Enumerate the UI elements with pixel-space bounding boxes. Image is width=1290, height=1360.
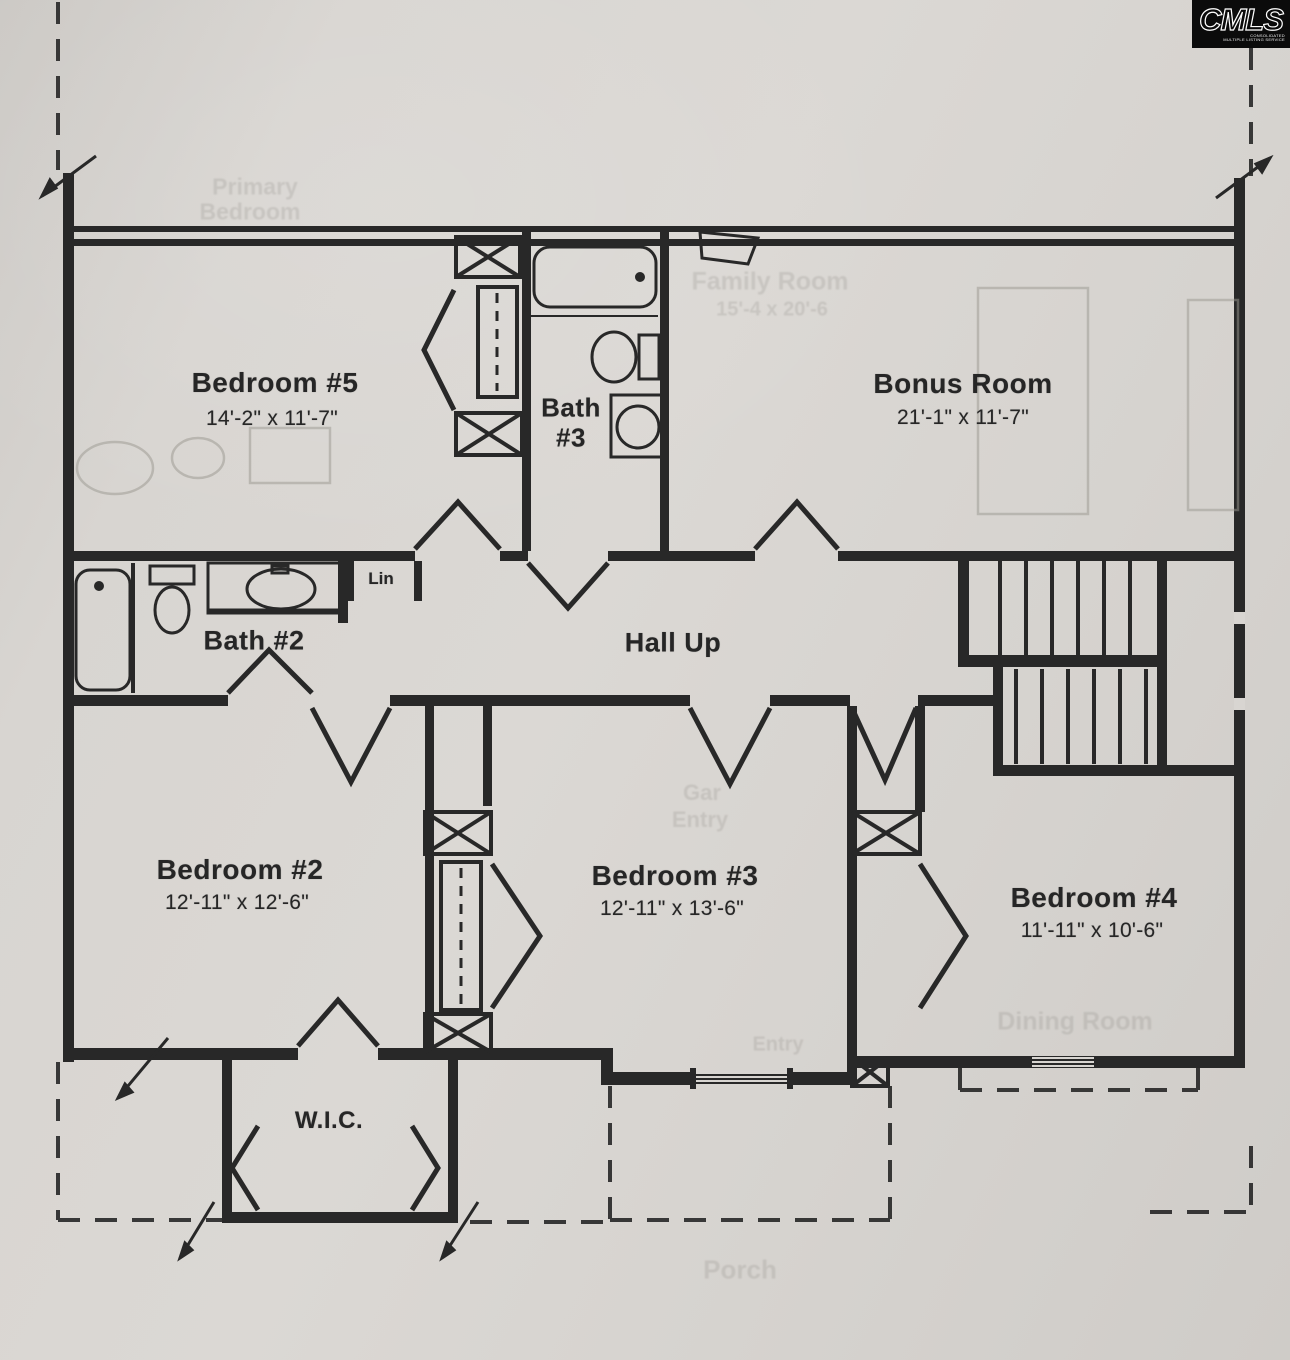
linen-closet-label: Lin [368,569,394,589]
ghost-text-family-room: Family Room [692,268,849,297]
ghost-text-primary-line2: Bedroom [200,199,301,226]
bedroom4-dims: 11'-11" x 10'-6" [1021,919,1164,943]
cmls-logo: CMLS CONSOLIDATED MULTIPLE LISTING SERVI… [1192,0,1290,48]
toilet-icon [592,332,659,382]
closet-x-icon [425,812,491,854]
cmls-logo-text: CMLS [1199,6,1283,34]
closet-x-icon [852,812,920,854]
bath3-label-line1: Bath [541,393,601,424]
floorplan-page: Bedroom #5 14'-2" x 11'-7" Bath #3 Bonus… [0,0,1290,1360]
ghost-text-dining-room: Dining Room [997,1008,1153,1037]
sink-icon [208,563,342,613]
bath3-label-line2: #3 [556,423,586,454]
ghost-text-entry: Entry [752,1034,803,1057]
wic-label: W.I.C. [295,1107,363,1135]
bedroom4-label: Bedroom #4 [1011,882,1178,914]
bath3-fixtures [527,247,665,457]
cmls-logo-subtitle: CONSOLIDATED MULTIPLE LISTING SERVICE [1223,34,1285,43]
floorplan-drawing [0,0,1290,1360]
closet-x-icon [456,413,522,455]
ghost-text-primary-line1: Primary [212,174,298,201]
bonus-room-dims: 21'-1" x 11'-7" [897,406,1029,430]
closets [425,237,920,1086]
ghost-text-gar-entry: Entry [672,807,728,833]
bedroom3-dims: 12'-11" x 13'-6" [600,897,744,921]
bedroom5-label: Bedroom #5 [192,367,359,399]
bedroom2-label: Bedroom #2 [157,854,324,886]
closet-x-icon [425,1014,491,1052]
hall-up-label: Hall Up [625,628,722,659]
bath2-label: Bath #2 [203,626,304,657]
ghost-furniture [77,288,1238,514]
toilet-icon [150,566,194,633]
ghost-text-porch: Porch [703,1255,777,1286]
bonus-room-label: Bonus Room [873,368,1052,400]
ghost-text-gar: Gar [683,780,721,806]
bedroom3-label: Bedroom #3 [592,860,759,892]
ghost-text-family-room-dims: 15'-4 x 20'-6 [716,299,828,322]
chimney-mark [700,232,758,264]
bedroom5-dims: 14'-2" x 11'-7" [206,407,338,431]
sink-icon [611,395,665,457]
bedroom2-dims: 12'-11" x 12'-6" [165,891,309,915]
